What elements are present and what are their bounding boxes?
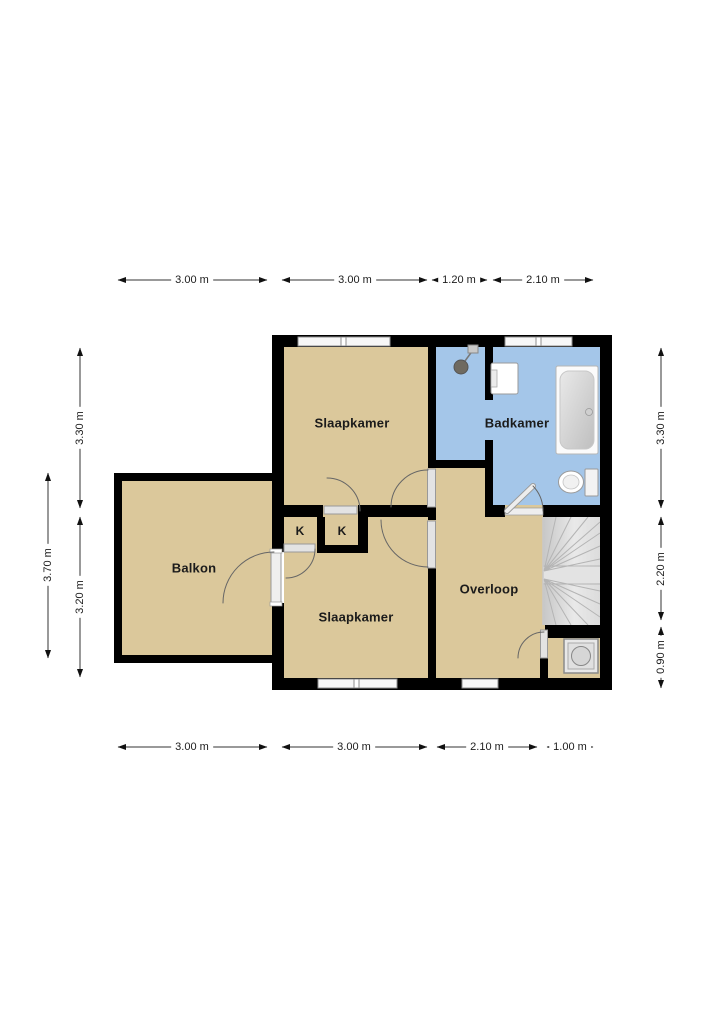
bathtub-icon	[556, 366, 598, 454]
dimension-label-left-2: 3.20 m	[74, 576, 86, 618]
dimension-label-left-1: 3.30 m	[74, 407, 86, 449]
window-top-slaapkamer	[298, 337, 390, 346]
washing-machine-icon	[564, 639, 598, 673]
dimension-label-top-1: 3.00 m	[171, 274, 213, 286]
dimension-label-bottom-2: 3.00 m	[333, 741, 375, 753]
window-bottom-overloop	[462, 679, 498, 688]
wall-left-upper	[272, 335, 284, 552]
dimension-label-left-outer: 3.70 m	[42, 544, 54, 586]
floor-plan-page: Slaapkamer Badkamer Balkon Slaapkamer Ov…	[0, 0, 724, 1024]
overloop-extension-floor	[436, 468, 485, 517]
dimension-label-top-3: 1.20 m	[438, 274, 480, 286]
dimension-label-bottom-3: 2.10 m	[466, 741, 508, 753]
room-label-slaapkamer-top: Slaapkamer	[315, 416, 390, 431]
dimension-label-top-2: 3.00 m	[334, 274, 376, 286]
room-label-slaapkamer-bottom: Slaapkamer	[319, 610, 394, 625]
floor-plan-graphic	[0, 0, 724, 1024]
room-label-closet-right: K	[338, 524, 347, 538]
wall-right	[600, 335, 612, 690]
room-label-overloop: Overloop	[460, 582, 519, 597]
sink-icon	[491, 363, 518, 394]
window-top-badkamer	[505, 337, 572, 346]
dimension-label-top-4: 2.10 m	[522, 274, 564, 286]
room-label-balkon: Balkon	[172, 561, 217, 576]
dimension-label-right-1: 3.30 m	[655, 407, 667, 449]
dimension-label-bottom-4: 1.00 m	[549, 741, 591, 753]
wall-left-lower	[272, 603, 284, 690]
winder-stairs	[543, 517, 600, 625]
room-label-badkamer: Badkamer	[485, 416, 549, 431]
dimension-label-bottom-1: 3.00 m	[171, 741, 213, 753]
window-bottom-slaapkamer	[318, 679, 397, 688]
room-label-closet-left: K	[296, 524, 305, 538]
dimension-label-right-3: 0.90 m	[655, 636, 667, 678]
dimension-label-right-2: 2.20 m	[655, 548, 667, 590]
